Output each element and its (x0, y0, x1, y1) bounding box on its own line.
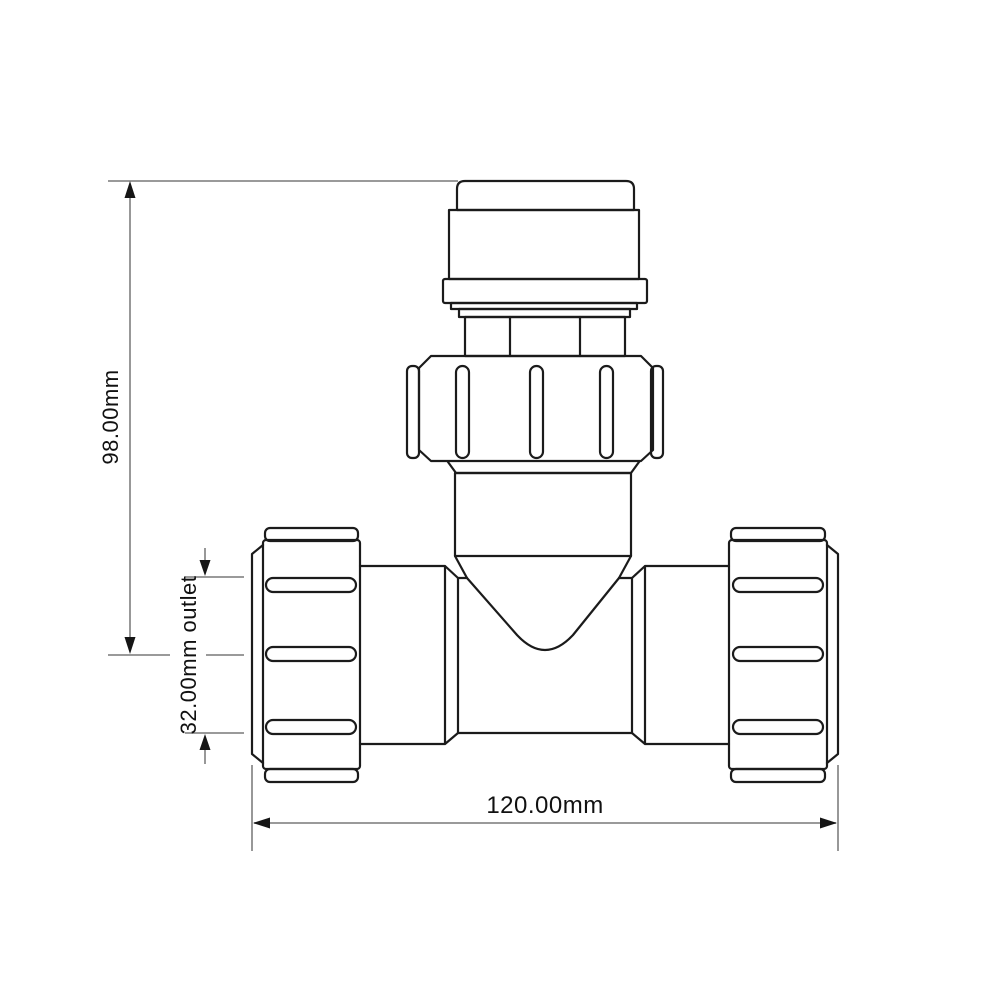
left-nut-rib (266, 720, 356, 734)
neck (465, 317, 625, 356)
top-nut-rib (600, 366, 613, 458)
vertical-body (455, 473, 631, 556)
body-chamfer-left (455, 556, 467, 578)
arrow-down-icon (200, 560, 211, 576)
left-nut-rib (266, 578, 356, 592)
right-pipe (632, 566, 729, 744)
pipe-fitting-diagram: 98.00mm 32.00mm outlet 120.00mm (0, 0, 1000, 1000)
height-dimension-label: 98.00mm (98, 369, 123, 464)
left-nut-ear (252, 545, 263, 763)
neck-band (459, 309, 630, 317)
arrow-up-icon (125, 181, 136, 198)
top-cap (457, 181, 634, 210)
right-nut-bottom-band (731, 769, 825, 782)
left-nut-bottom-band (265, 769, 358, 782)
right-nut-rib (733, 578, 823, 592)
left-pipe (360, 566, 458, 744)
funnel-v (467, 578, 619, 650)
body-chamfer-right (619, 556, 631, 578)
right-nut-rib (733, 647, 823, 661)
right-nut-rib (733, 720, 823, 734)
top-block (449, 210, 639, 279)
tee-centre-hub (458, 578, 632, 733)
nut-taper (448, 462, 639, 473)
right-nut-ear (827, 545, 838, 763)
arrow-left-icon (253, 818, 270, 829)
top-nut-rib (456, 366, 469, 458)
width-dimension-label: 120.00mm (486, 792, 603, 819)
outlet-dimension-label: 32.00mm outlet (176, 576, 201, 735)
left-nut-rib (266, 647, 356, 661)
top-compression-nut (419, 356, 653, 461)
neck-facet-lines (510, 317, 580, 356)
dimension-labels: 98.00mm 32.00mm outlet 120.00mm (98, 369, 604, 819)
arrow-up-icon (200, 734, 211, 750)
arrow-down-icon (125, 637, 136, 654)
drawing-canvas: 98.00mm 32.00mm outlet 120.00mm (0, 0, 1000, 1000)
top-nut-left-ear (407, 366, 419, 458)
arrow-right-icon (820, 818, 837, 829)
fitting-outline (252, 181, 838, 782)
top-flange (443, 279, 647, 303)
top-nut-rib (530, 366, 543, 458)
